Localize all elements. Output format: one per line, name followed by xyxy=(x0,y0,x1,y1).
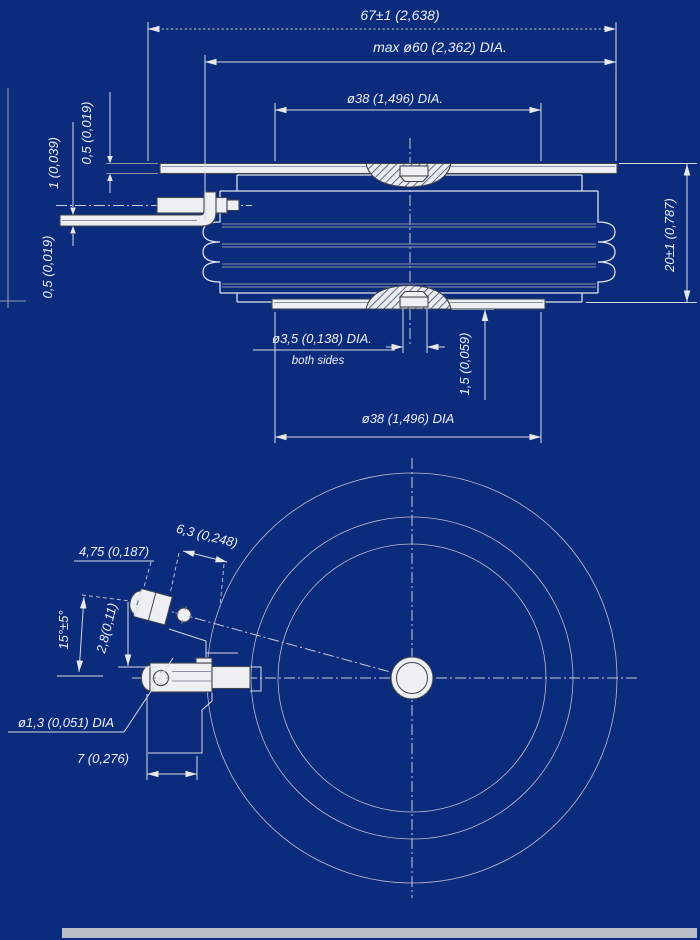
dim-bottom-tab-thickness-label: 0,5 (0,019) xyxy=(40,236,55,299)
center-hub xyxy=(391,657,433,699)
dim-height-label: 20±1 (0,787) xyxy=(662,198,677,273)
dim-gate-pin-dia-label: ø1,3 (0,051) DIA xyxy=(18,715,114,730)
dim-center-recess-dia-label: ø3,5 (0,138) DIA. xyxy=(272,331,372,346)
dim-center-recess-note: both sides xyxy=(292,355,345,367)
technical-drawing-canvas: 67±1 (2,638) max ø60 (2,362) DIA. ø38 (1… xyxy=(0,0,700,940)
dim-gate-angle-label: 15°±5° xyxy=(56,610,71,649)
bottom-contact-recess xyxy=(400,297,428,307)
blueprint-page: 67±1 (2,638) max ø60 (2,362) DIA. ø38 (1… xyxy=(0,0,700,940)
dim-gate-terminal-width-label: 4,75 (0,187) xyxy=(79,544,149,559)
dim-tab-spacing-label: 1 (0,039) xyxy=(46,137,61,189)
top-contact-recess xyxy=(400,166,428,176)
dim-max-body-dia-label: max ø60 (2,362) DIA. xyxy=(373,39,507,55)
dim-bottom-contact-dia-label: ø38 (1,496) DIA xyxy=(362,411,455,426)
scan-band xyxy=(62,928,697,938)
background xyxy=(0,0,700,940)
dim-overall-width-label: 67±1 (2,638) xyxy=(360,7,439,23)
dim-top-contact-dia-label: ø38 (1,496) DIA. xyxy=(347,91,443,106)
dim-bottom-tab-thickness: 0,5 (0,019) xyxy=(40,236,55,299)
dim-gate-pin-distance-label: 7 (0,276) xyxy=(77,751,129,766)
gate-connector-neck xyxy=(227,200,239,211)
dim-recess-depth-label: 1,5 (0,059) xyxy=(457,333,472,396)
dim-top-tab-thickness-label: 0,5 (0,019) xyxy=(79,102,94,165)
